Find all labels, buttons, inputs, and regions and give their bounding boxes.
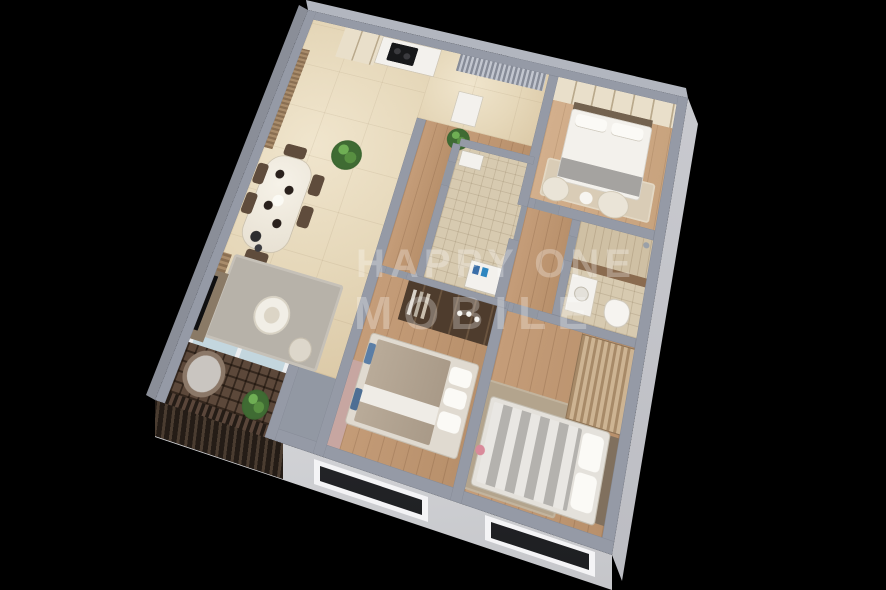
burner: [393, 47, 402, 55]
pillow: [447, 366, 473, 390]
pillow: [436, 410, 462, 435]
centerpiece: [271, 194, 286, 208]
watermark-line-1: HAPPY ONE: [356, 242, 636, 287]
floorplan-render: HAPPY ONE MOBILE: [0, 0, 886, 590]
pillow: [577, 432, 605, 474]
place-setting: [271, 218, 283, 229]
pillow: [574, 113, 608, 132]
wall-master-sw-a: [527, 197, 536, 208]
pillow: [442, 387, 468, 411]
pillow: [569, 471, 597, 515]
place-setting: [283, 185, 295, 196]
place-setting: [274, 169, 285, 180]
pillow: [610, 122, 644, 142]
burner: [402, 53, 411, 61]
watermark-line-2: MOBILE: [354, 286, 599, 340]
